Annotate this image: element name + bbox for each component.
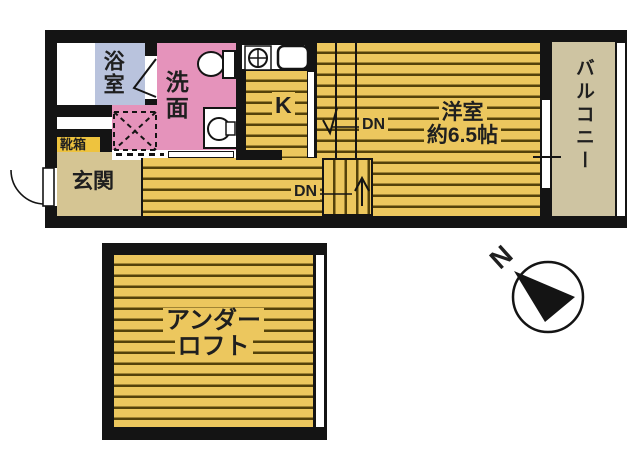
western-room-name: 洋室 — [439, 101, 487, 124]
washing-machine-icon — [204, 108, 237, 148]
stairs-lower-dn-label: DN — [291, 183, 320, 201]
underloft-line2: ロフト — [175, 334, 253, 360]
bath-folding-door — [134, 59, 156, 97]
stairs-down-arrow-lower — [318, 178, 369, 206]
entrance-label: 玄関 — [72, 170, 114, 193]
toilet-icon — [198, 51, 235, 78]
kitchen-label: K — [272, 93, 295, 118]
floorplan-canvas: 浴室 洗面 K DN 洋室 約6.5帖 DN 玄関 靴箱 バルコニー アンダー … — [0, 0, 640, 463]
shoebox-label: 靴箱 — [60, 138, 86, 152]
sink-icon — [278, 46, 308, 69]
stairs-upper-dn-label: DN — [359, 116, 388, 134]
fixtures-overlay — [0, 0, 640, 463]
compass-icon — [513, 262, 583, 332]
western-room-size: 約6.5帖 — [424, 124, 501, 147]
balcony-label: バルコニー — [572, 58, 593, 173]
bathroom-label: 浴室 — [101, 50, 124, 96]
underloft-label: アンダー ロフト — [140, 308, 287, 361]
stove-icon — [245, 46, 271, 70]
entrance-door-leaf — [43, 168, 54, 206]
washroom-label: 洗面 — [162, 70, 187, 122]
entrance-door-arc — [11, 170, 45, 204]
western-room-label: 洋室 約6.5帖 — [395, 101, 530, 147]
stairs-down-arrow-upper — [323, 108, 359, 133]
washer-pan-dashed-square — [114, 112, 156, 150]
underloft-line1: アンダー — [163, 308, 264, 334]
